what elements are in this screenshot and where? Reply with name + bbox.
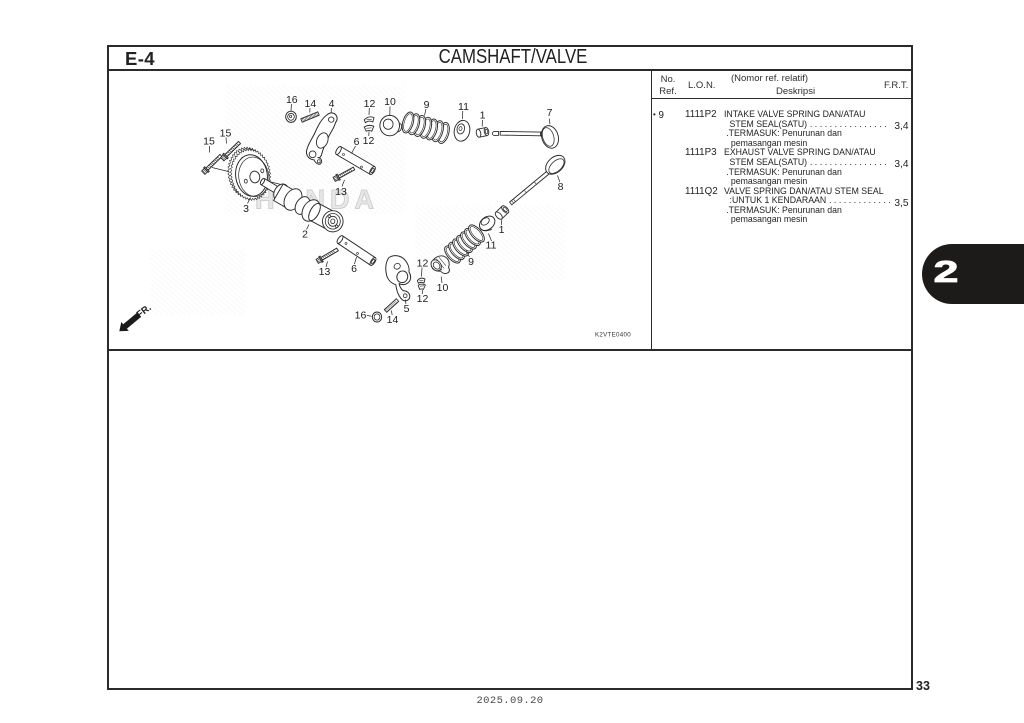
svg-text:15: 15 [220,128,232,140]
svg-text:14: 14 [387,314,399,326]
svg-text:8: 8 [558,181,564,193]
svg-text:16: 16 [355,310,367,322]
svg-text:10: 10 [384,96,396,108]
svg-text:12: 12 [417,258,429,270]
svg-text:11: 11 [486,240,497,252]
svg-text:13: 13 [319,266,331,278]
svg-text:2: 2 [302,229,308,241]
svg-text:K2VTE0400: K2VTE0400 [595,332,631,339]
svg-text:16: 16 [286,94,298,106]
svg-text:6: 6 [351,263,357,275]
svg-text:12: 12 [417,293,429,305]
svg-text:1: 1 [480,110,486,122]
svg-text:14: 14 [305,98,317,110]
svg-text:5: 5 [404,303,410,315]
svg-text:1: 1 [499,224,505,236]
svg-text:15: 15 [203,136,215,148]
svg-text:11: 11 [458,101,469,113]
svg-text:6: 6 [354,136,360,148]
svg-text:9: 9 [424,99,430,111]
svg-text:9: 9 [468,256,474,268]
svg-text:12: 12 [363,135,375,147]
svg-text:3: 3 [243,203,249,215]
svg-text:7: 7 [547,107,553,119]
svg-text:10: 10 [437,282,449,294]
svg-text:13: 13 [335,186,347,198]
